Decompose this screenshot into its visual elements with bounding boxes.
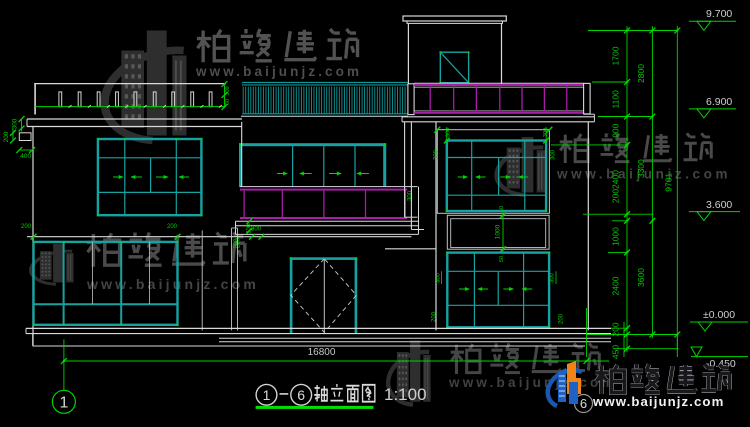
svg-text:400: 400 bbox=[20, 153, 31, 160]
svg-text:www.baijunjz.com: www.baijunjz.com bbox=[592, 394, 724, 409]
svg-text:3.600: 3.600 bbox=[706, 199, 732, 211]
svg-text:300: 300 bbox=[434, 149, 440, 160]
svg-text:1: 1 bbox=[263, 387, 271, 403]
svg-text:200: 200 bbox=[611, 189, 621, 203]
svg-text:300: 300 bbox=[550, 272, 556, 283]
svg-text:50: 50 bbox=[499, 206, 505, 212]
svg-text:200: 200 bbox=[3, 131, 10, 142]
svg-text:60: 60 bbox=[225, 99, 231, 105]
svg-text:6: 6 bbox=[297, 387, 305, 403]
svg-text:50: 50 bbox=[499, 256, 505, 262]
svg-text:200: 200 bbox=[234, 238, 240, 249]
svg-text:300: 300 bbox=[251, 227, 262, 233]
svg-text:1700: 1700 bbox=[611, 46, 621, 65]
svg-text:300: 300 bbox=[551, 149, 557, 160]
svg-text:200: 200 bbox=[432, 311, 438, 322]
svg-text:1000: 1000 bbox=[495, 224, 502, 239]
svg-text:900: 900 bbox=[611, 123, 621, 137]
svg-text:2400: 2400 bbox=[611, 276, 621, 295]
svg-text:9701: 9701 bbox=[664, 173, 674, 192]
svg-text:200: 200 bbox=[611, 322, 621, 336]
svg-text:1100: 1100 bbox=[611, 90, 621, 109]
svg-text:300: 300 bbox=[12, 118, 19, 129]
svg-text:±0.000: ±0.000 bbox=[703, 309, 735, 321]
svg-text:1: 1 bbox=[59, 395, 68, 412]
svg-text:200: 200 bbox=[167, 224, 178, 230]
svg-text:6: 6 bbox=[580, 396, 587, 411]
svg-text:2800: 2800 bbox=[636, 64, 646, 83]
svg-text:9.700: 9.700 bbox=[706, 8, 732, 20]
svg-text:300: 300 bbox=[225, 86, 231, 95]
svg-text:6.900: 6.900 bbox=[706, 96, 732, 108]
svg-text:300: 300 bbox=[436, 272, 442, 283]
svg-text:1:100: 1:100 bbox=[384, 385, 427, 404]
svg-text:1000: 1000 bbox=[611, 227, 621, 246]
svg-text:www.baijunjz.com: www.baijunjz.com bbox=[195, 64, 362, 79]
svg-text:2400: 2400 bbox=[611, 170, 621, 189]
svg-text:3300: 3300 bbox=[636, 159, 646, 178]
svg-text:www.baijunjz.com: www.baijunjz.com bbox=[86, 276, 259, 292]
svg-text:200: 200 bbox=[559, 313, 565, 324]
svg-text:300: 300 bbox=[408, 190, 414, 201]
svg-text:16800: 16800 bbox=[308, 347, 336, 358]
svg-text:200: 200 bbox=[21, 224, 32, 230]
svg-text:www.baijunjz.com: www.baijunjz.com bbox=[448, 375, 617, 390]
svg-text:3600: 3600 bbox=[636, 268, 646, 287]
svg-text:450: 450 bbox=[611, 345, 621, 359]
